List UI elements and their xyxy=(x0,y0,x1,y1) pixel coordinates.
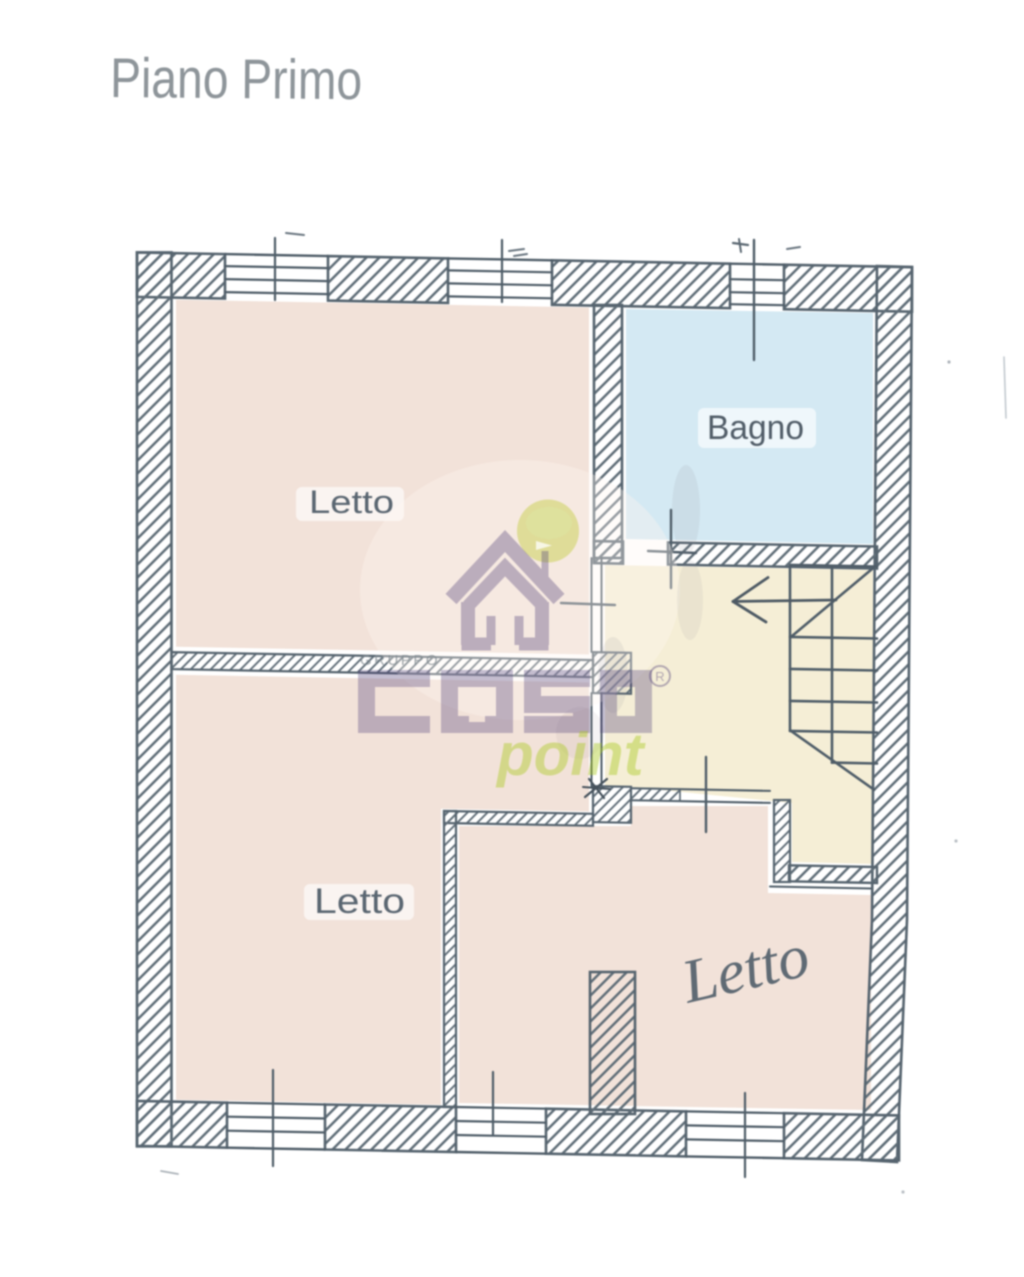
svg-text:Piano Primo: Piano Primo xyxy=(110,46,363,111)
svg-text:GRUPPO: GRUPPO xyxy=(360,652,440,669)
svg-text:Letto: Letto xyxy=(314,882,405,921)
svg-text:point: point xyxy=(495,721,647,788)
svg-text:R: R xyxy=(655,669,664,684)
svg-text:Bagno: Bagno xyxy=(707,409,804,447)
svg-text:Letto: Letto xyxy=(309,484,394,520)
